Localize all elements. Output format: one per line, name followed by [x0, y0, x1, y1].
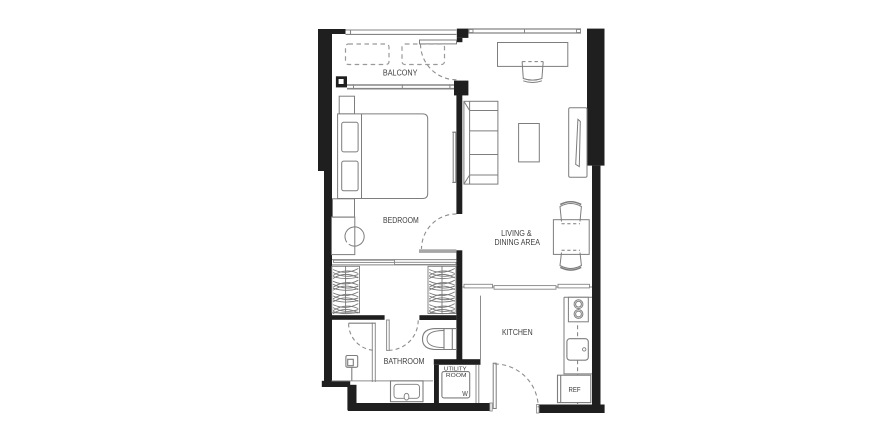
svg-text:BATHROOM: BATHROOM — [384, 357, 425, 366]
svg-text:BEDROOM: BEDROOM — [383, 216, 419, 225]
svg-text:W: W — [462, 391, 468, 398]
svg-text:BALCONY: BALCONY — [383, 68, 418, 77]
svg-text:DINING AREA: DINING AREA — [494, 238, 540, 247]
svg-text:LIVING &: LIVING & — [501, 229, 532, 238]
svg-text:REF: REF — [569, 387, 581, 394]
svg-text:UTILITY: UTILITY — [444, 367, 467, 373]
svg-text:ROOM: ROOM — [446, 373, 467, 379]
svg-text:KITCHEN: KITCHEN — [502, 328, 533, 337]
